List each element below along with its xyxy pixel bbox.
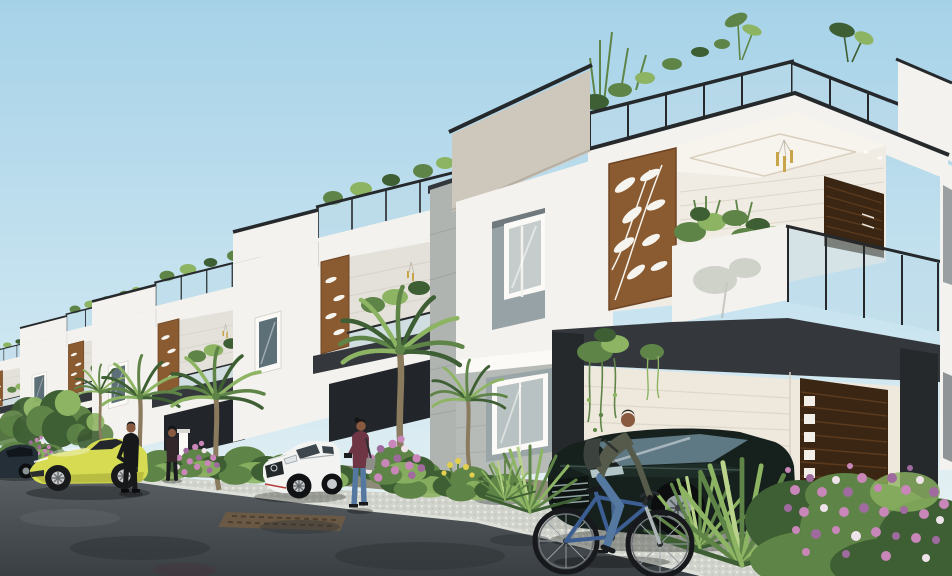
door-window bbox=[804, 432, 815, 442]
right-wall bbox=[940, 160, 952, 470]
door-window bbox=[804, 414, 815, 424]
upper-window bbox=[492, 208, 545, 330]
handbag bbox=[365, 458, 375, 471]
wet-patch bbox=[490, 534, 550, 546]
laser-cut-fern-panel bbox=[609, 148, 676, 310]
phone bbox=[344, 453, 352, 458]
render-viewport: Street view of a row of modern white dup… bbox=[0, 0, 952, 576]
light-patch bbox=[20, 509, 120, 527]
wet-patch bbox=[335, 542, 505, 570]
bike-seat bbox=[588, 488, 602, 491]
side-wall-gray bbox=[430, 181, 458, 490]
door-window bbox=[804, 396, 815, 406]
car-wheel bbox=[287, 474, 312, 499]
door-window bbox=[804, 450, 815, 460]
wet-patch bbox=[70, 536, 210, 560]
wet-patch bbox=[260, 520, 340, 534]
car-wheel bbox=[45, 465, 71, 491]
